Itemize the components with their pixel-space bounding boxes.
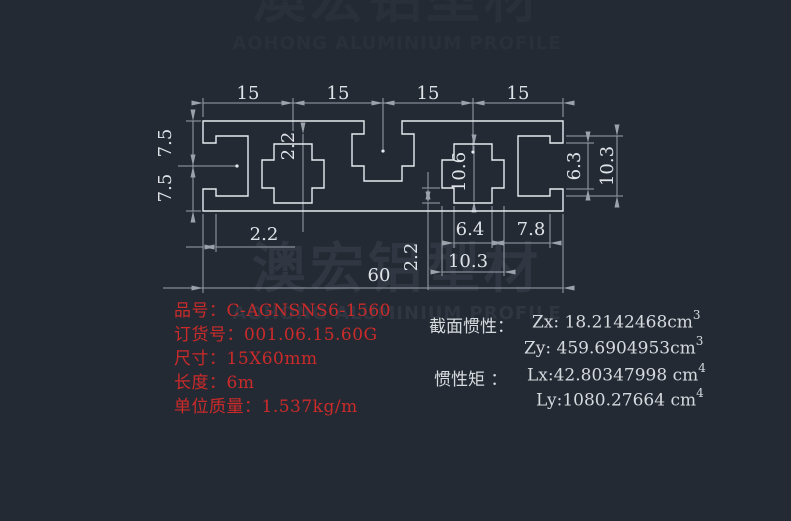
section-ly-exponent: 4 — [696, 386, 704, 400]
product-order-row: 订货号：001.06.15.60G — [174, 323, 391, 347]
dim-slot-wide-10-3: 10.3 — [448, 251, 488, 272]
section-zx: Zx: 18.2142468cm3 — [532, 310, 701, 333]
dim-top-15-1: 15 — [237, 83, 260, 104]
product-info: 品号：C-AGNSNS6-1560 订货号：001.06.15.60G 尺寸：1… — [174, 299, 391, 419]
product-order-value: 001.06.15.60G — [244, 325, 378, 345]
product-item-value: C-AGNSNS6-1560 — [227, 301, 391, 321]
product-size-row: 尺寸：15X60mm — [174, 347, 391, 371]
cad-drawing-canvas[interactable]: 澳宏铝型材 AOHONG ALUMINIUM PROFILE 澳宏铝型材 AOH… — [0, 0, 791, 521]
dim-web-gap-7-8: 7.8 — [517, 219, 546, 240]
product-item-label: 品号： — [174, 301, 227, 321]
dim-top-15-3: 15 — [417, 83, 440, 104]
dim-slot-narrow-6-4: 6.4 — [456, 219, 485, 240]
section-inertia-label: 截面惯性： — [429, 312, 514, 337]
product-size-value: 15X60mm — [227, 349, 318, 369]
product-length-value: 6m — [227, 373, 255, 393]
product-order-label: 订货号： — [174, 325, 244, 345]
section-lx: Lx:42.80347998 cm4 — [527, 363, 706, 386]
section-lx-exponent: 4 — [698, 361, 706, 375]
profile-drawing: 15 15 15 15 7.5 7.5 2.2 10.6 2.2 6.3 10.… — [0, 0, 791, 521]
section-moment-label: 惯性矩 ： — [434, 365, 507, 390]
section-zy-exponent: 3 — [696, 334, 704, 348]
product-length-label: 长度： — [174, 373, 227, 393]
section-ly-value: Ly:1080.27664 cm — [536, 391, 696, 411]
dim-right-opening-6-3: 6.3 — [564, 152, 585, 181]
section-zy-value: Zy: 459.6904953cm — [524, 339, 696, 359]
dim-wall-top-2-2: 2.2 — [278, 132, 299, 161]
product-size-label: 尺寸： — [174, 349, 227, 369]
dim-overall-width-60: 60 — [368, 265, 391, 286]
product-weight-value: 1.537kg/m — [262, 397, 358, 417]
dim-top-15-4: 15 — [507, 83, 530, 104]
reference-dots — [235, 149, 474, 167]
dim-left-7-5-lower: 7.5 — [155, 174, 176, 203]
dimension-labels: 15 15 15 15 7.5 7.5 2.2 10.6 2.2 6.3 10.… — [155, 83, 618, 286]
product-length-row: 长度：6m — [174, 371, 391, 395]
section-lx-value: Lx:42.80347998 cm — [527, 366, 698, 386]
dim-wall-step-2-2: 2.2 — [401, 243, 422, 272]
section-zy: Zy: 459.6904953cm3 — [524, 336, 703, 359]
dim-right-cavity-10-3: 10.3 — [597, 146, 618, 186]
dim-lip-2-2: 2.2 — [250, 224, 279, 245]
dim-cavity-height-10-6: 10.6 — [449, 152, 470, 192]
section-zx-exponent: 3 — [693, 308, 701, 322]
section-zx-value: Zx: 18.2142468cm — [532, 313, 693, 333]
dim-top-15-2: 15 — [327, 83, 350, 104]
dim-left-7-5-upper: 7.5 — [155, 129, 176, 158]
section-ly: Ly:1080.27664 cm4 — [536, 388, 704, 411]
product-item-row: 品号：C-AGNSNS6-1560 — [174, 299, 391, 323]
product-weight-row: 单位质量：1.537kg/m — [174, 395, 391, 419]
product-weight-label: 单位质量： — [174, 397, 262, 417]
